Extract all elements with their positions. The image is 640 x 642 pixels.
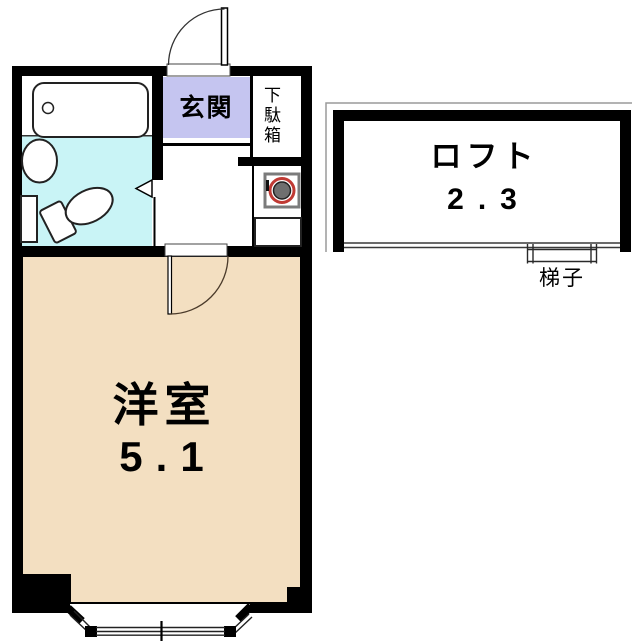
main-room-label: 洋室 <box>22 382 301 428</box>
loft-shadow-line <box>326 103 632 252</box>
ladder-label: 梯子 <box>512 268 612 289</box>
bathroom-cabinet-icon <box>21 196 37 242</box>
stove-icon <box>265 174 299 207</box>
loft-size: 2.3 <box>344 185 620 215</box>
bathtub-icon <box>33 83 148 137</box>
floor-plan: 玄関 下駄箱 洋室 5.1 ロフト 2.3 梯子 <box>0 0 640 642</box>
main-room-size: 5.1 <box>22 436 301 478</box>
loft-label: ロフト <box>344 141 620 172</box>
kitchen-sink-icon <box>255 218 301 246</box>
entrance-label: 玄関 <box>163 96 250 121</box>
entrance-door-icon <box>167 8 230 76</box>
bay-window-icon <box>68 606 252 641</box>
floor-plan-drawing <box>0 0 640 642</box>
washbasin-icon <box>22 140 57 183</box>
entrance-step-line <box>163 143 250 146</box>
loft-walls <box>333 110 631 252</box>
shoe-cabinet-label: 下駄箱 <box>262 86 279 146</box>
